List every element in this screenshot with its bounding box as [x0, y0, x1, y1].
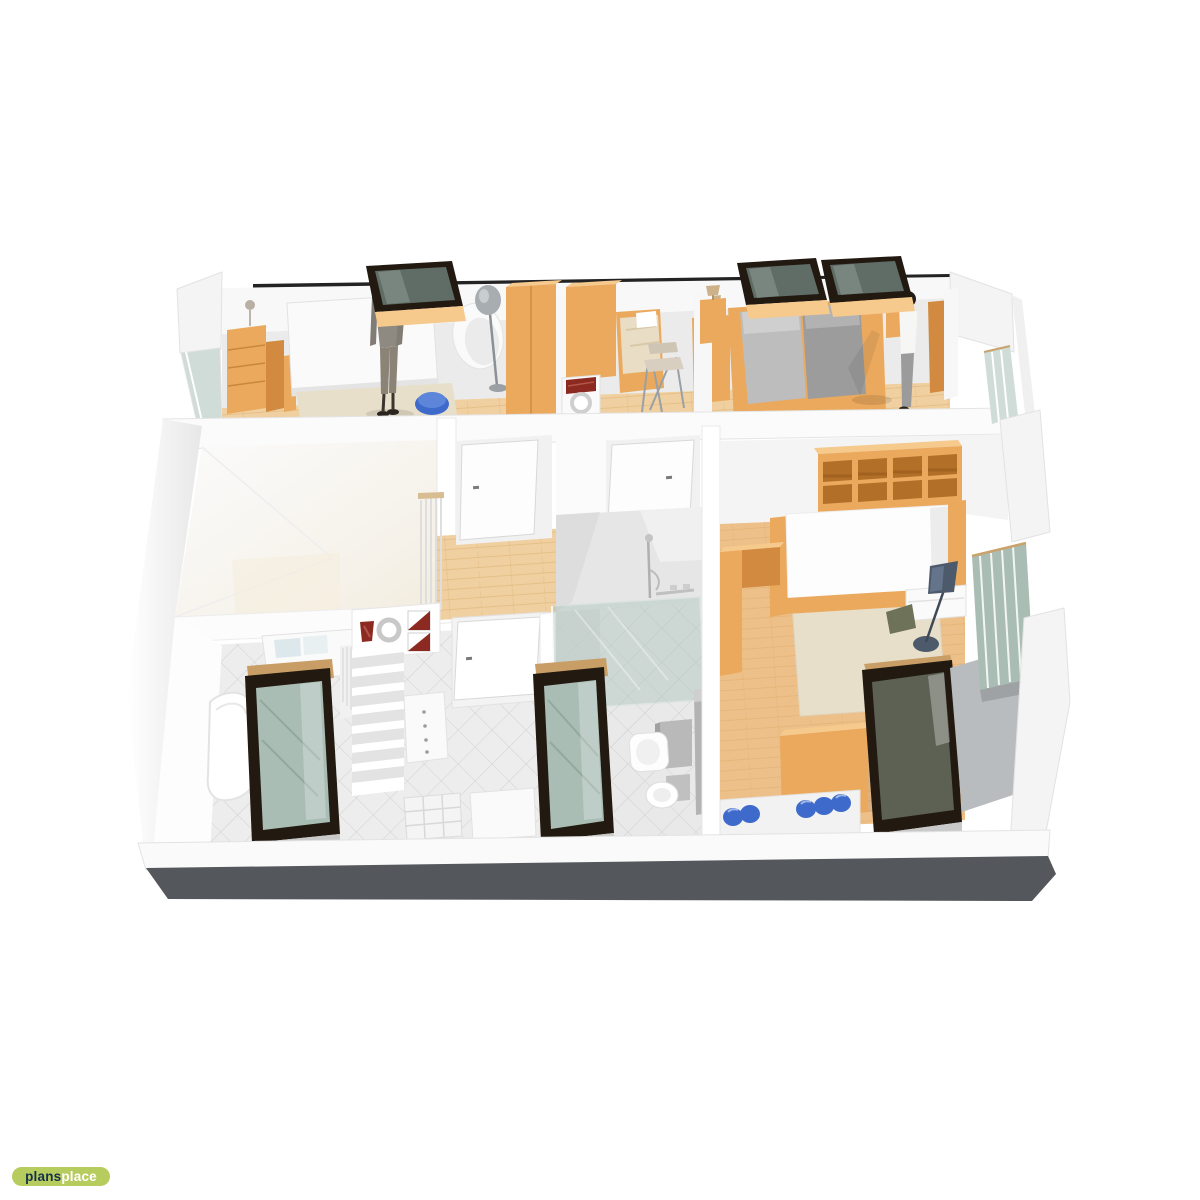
tall-dresser — [404, 692, 448, 763]
door-3 — [452, 612, 548, 708]
right-wall-block — [1000, 410, 1050, 542]
wardrobe-b — [566, 284, 616, 381]
cube-organizer — [404, 793, 462, 840]
logo-text-place: place — [61, 1169, 97, 1184]
skylight-2 — [737, 258, 830, 319]
roof-corner-right — [950, 272, 1014, 352]
wreath-deco — [379, 620, 399, 640]
right-room-wall-left — [702, 426, 720, 848]
bathroom — [533, 507, 716, 853]
door-1 — [456, 435, 552, 545]
room-front-left — [152, 603, 560, 862]
floorplan-render — [0, 0, 1200, 1200]
right-gable — [950, 295, 1070, 845]
bird-lamp — [245, 300, 255, 310]
stair-balusters — [340, 645, 352, 720]
door-3-handle — [466, 657, 472, 660]
roof-corner-left — [177, 272, 222, 353]
dormer-window-3 — [862, 655, 962, 846]
back-right-endwall — [944, 288, 958, 400]
door-2-handle — [666, 476, 672, 479]
plansplace-logo: plansplace — [12, 1167, 110, 1186]
room-mid-left — [175, 440, 437, 621]
dormer-window-2 — [533, 658, 614, 853]
door-1-handle — [473, 486, 479, 489]
white-slab — [470, 788, 536, 840]
logo-text-plans: plans — [25, 1169, 61, 1184]
bookshelf-step — [266, 340, 284, 412]
skylight-1 — [366, 261, 466, 327]
nightstand-left — [700, 298, 726, 344]
skylight-3 — [821, 256, 915, 317]
dormer-window-1 — [245, 659, 340, 855]
landing-railing — [418, 492, 444, 612]
wreath — [572, 394, 590, 412]
cube-shelf — [814, 440, 962, 516]
bookshelf — [227, 325, 266, 414]
handrail — [418, 492, 444, 499]
nightstand-lamp — [706, 285, 720, 296]
front-wall — [138, 830, 1056, 901]
bed-middle-pillow — [636, 311, 657, 328]
